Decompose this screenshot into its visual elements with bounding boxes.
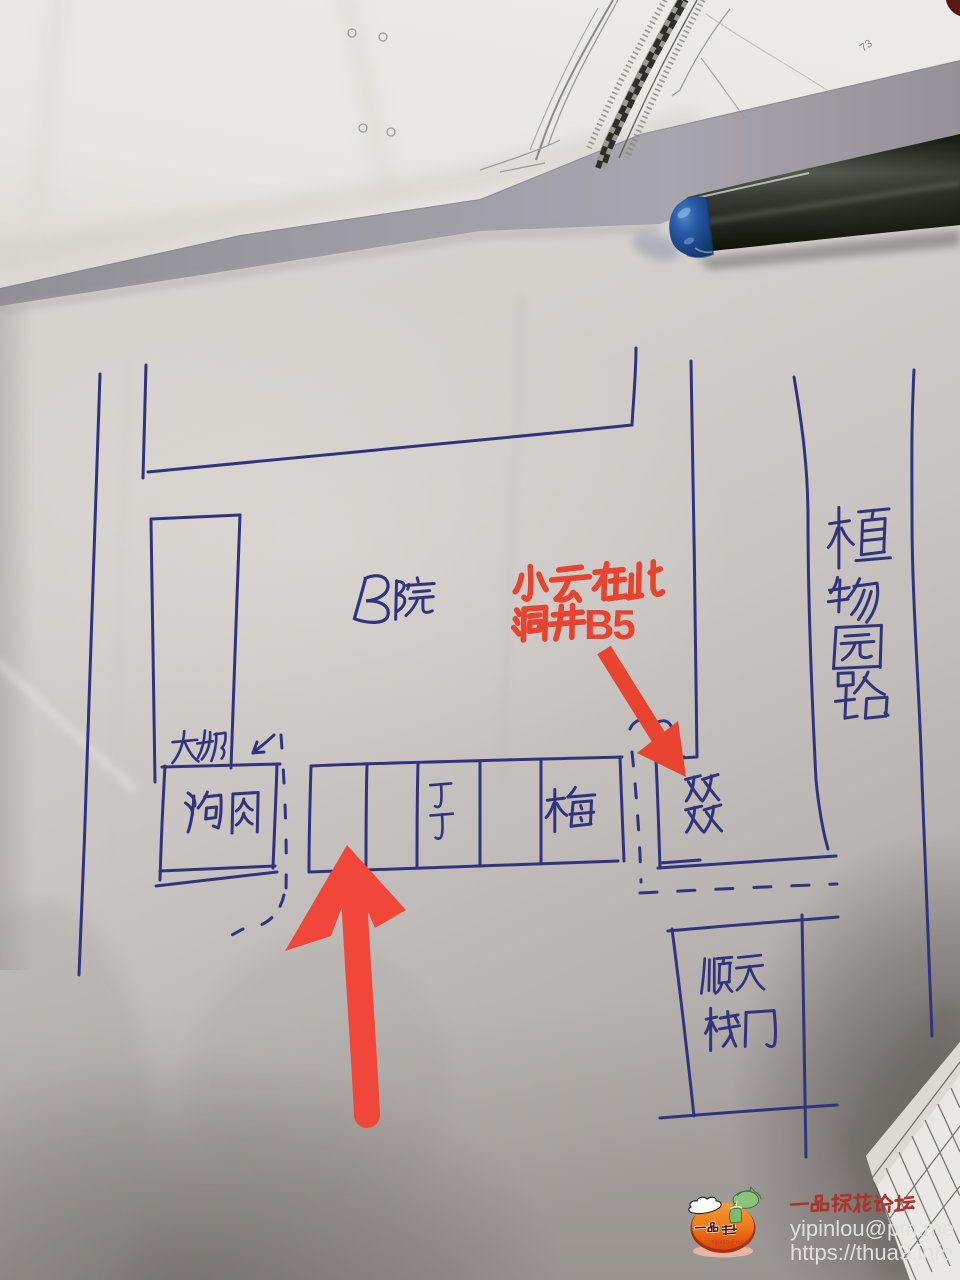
svg-text:yipinlou@pm.me: yipinlou@pm.me [790,1216,954,1241]
svg-text:B5: B5 [584,601,635,648]
svg-text:YipinlouForum: YipinlouForum [711,1240,749,1246]
svg-text:https://thua9.info: https://thua9.info [790,1240,953,1265]
